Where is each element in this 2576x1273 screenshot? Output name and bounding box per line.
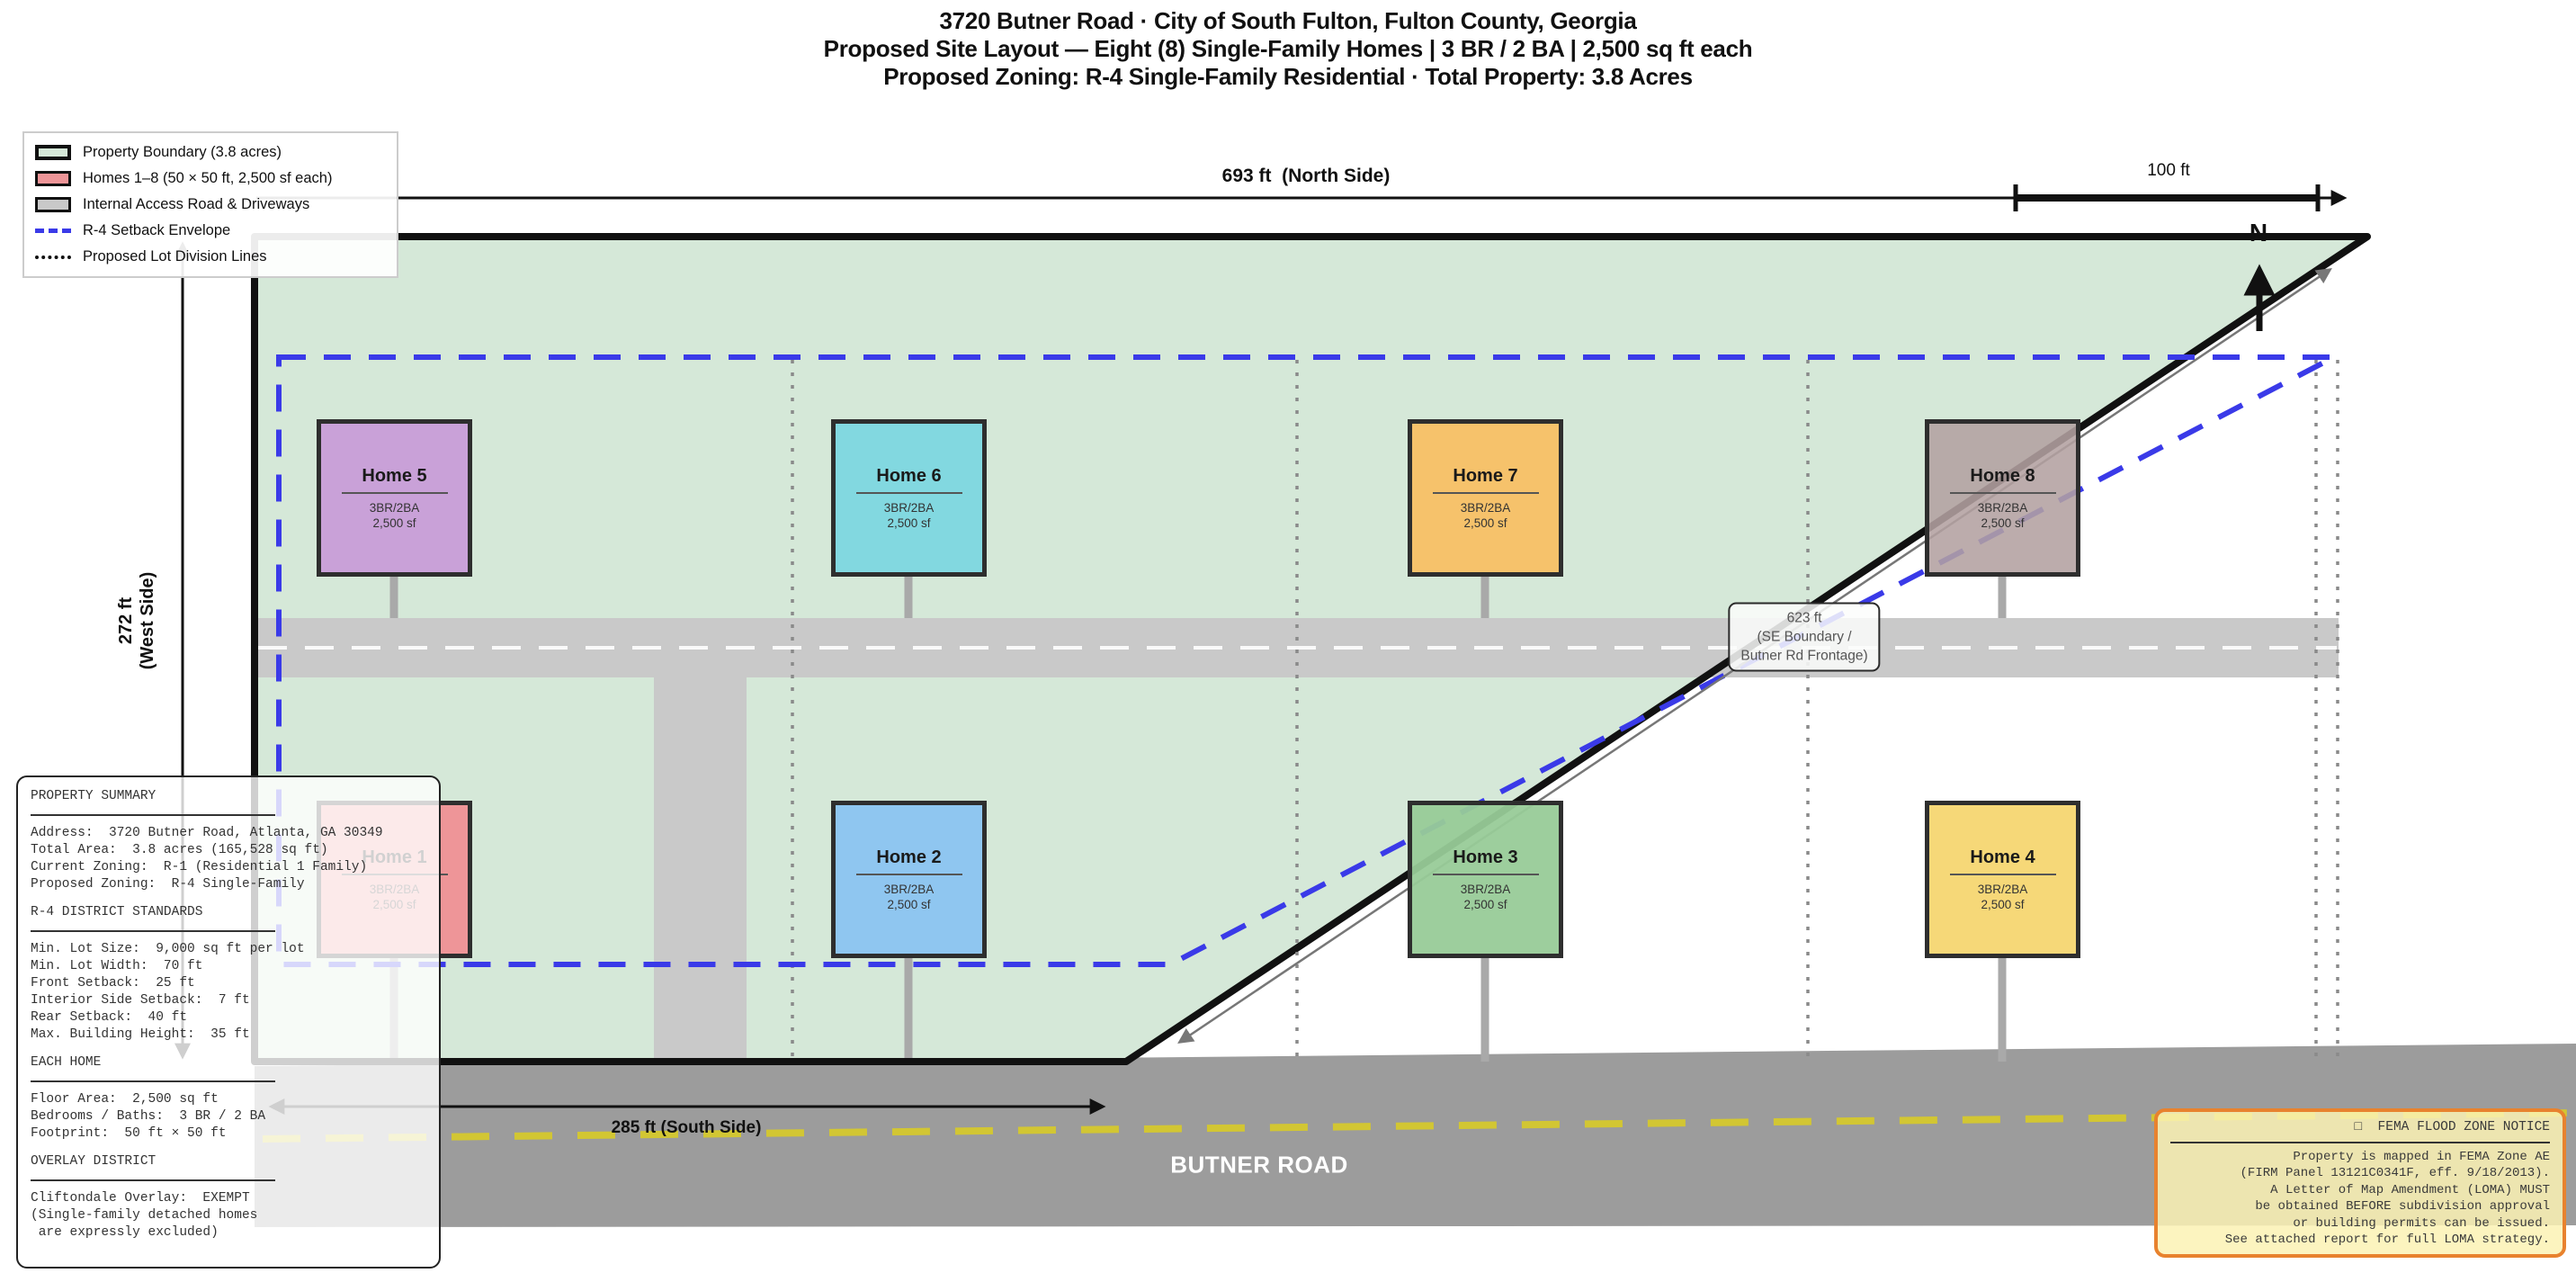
home-divider <box>1950 874 2056 875</box>
west-dimension-label: 272 ft (West Side) <box>115 572 158 670</box>
legend: Property Boundary (3.8 acres) Homes 1–8 … <box>22 131 398 278</box>
se-frontage-label: 623 ft (SE Boundary / Butner Rd Frontage… <box>1728 603 1880 672</box>
home-area: 2,500 sf <box>887 515 930 531</box>
summary-line: Rear Setback: 40 ft <box>31 1009 426 1026</box>
legend-label: Internal Access Road & Driveways <box>83 196 309 213</box>
home-area: 2,500 sf <box>887 897 930 912</box>
home-divider <box>1950 492 2056 494</box>
summary-line: Min. Lot Size: 9,000 sq ft per lot <box>31 941 426 958</box>
home-specs: 3BR/2BA <box>370 500 420 515</box>
se-frontage-length: 623 ft <box>1740 609 1867 628</box>
home-box: Home 8 3BR/2BA 2,500 sf <box>1925 419 2080 577</box>
fema-notice-line: be obtained BEFORE subdivision approval <box>2170 1198 2550 1215</box>
home-name: Home 5 <box>362 466 426 487</box>
home-area: 2,500 sf <box>1463 897 1507 912</box>
home-area: 2,500 sf <box>1981 897 2024 912</box>
legend-swatch-icon <box>35 229 71 233</box>
legend-row: R-4 Setback Envelope <box>35 218 386 244</box>
summary-line: Footprint: 50 ft × 50 ft <box>31 1125 426 1143</box>
legend-row: Property Boundary (3.8 acres) <box>35 139 386 166</box>
fema-notice-line: Property is mapped in FEMA Zone AE <box>2170 1149 2550 1166</box>
page-title: 3720 Butner Road · City of South Fulton,… <box>0 7 2576 91</box>
summary-line: Min. Lot Width: 70 ft <box>31 958 426 975</box>
legend-swatch-icon <box>35 255 71 259</box>
legend-label: Homes 1–8 (50 × 50 ft, 2,500 sf each) <box>83 170 332 187</box>
legend-row: Internal Access Road & Driveways <box>35 192 386 218</box>
home-name: Home 8 <box>1970 466 2035 487</box>
home-specs: 3BR/2BA <box>1461 882 1511 897</box>
legend-swatch-icon <box>35 171 71 186</box>
home-divider <box>1433 492 1539 494</box>
home-name: Home 7 <box>1453 466 1517 487</box>
home-name: Home 2 <box>876 847 941 868</box>
summary-line: (Single-family detached homes <box>31 1207 426 1224</box>
home-specs: 3BR/2BA <box>1978 882 2028 897</box>
fema-notice-line: or building permits can be issued. <box>2170 1215 2550 1233</box>
home-box: Home 7 3BR/2BA 2,500 sf <box>1408 419 1563 577</box>
fema-notice-line: A Letter of Map Amendment (LOMA) MUST <box>2170 1182 2550 1199</box>
summary-line: Front Setback: 25 ft <box>31 975 426 992</box>
summary-line: Bedrooms / Baths: 3 BR / 2 BA <box>31 1108 426 1125</box>
home-box: Home 6 3BR/2BA 2,500 sf <box>831 419 987 577</box>
title-line-3: Proposed Zoning: R-4 Single-Family Resid… <box>0 63 2576 91</box>
summary-line <box>31 1044 426 1054</box>
summary-line <box>31 893 426 904</box>
fema-notice-title: □ FEMA FLOOD ZONE NOTICE <box>2170 1119 2550 1143</box>
fema-notice-body: Property is mapped in FEMA Zone AE (FIRM… <box>2170 1149 2550 1249</box>
legend-row: Homes 1–8 (50 × 50 ft, 2,500 sf each) <box>35 166 386 192</box>
summary-line: Cliftondale Overlay: EXEMPT <box>31 1190 426 1207</box>
home-specs: 3BR/2BA <box>1978 500 2028 515</box>
home-area: 2,500 sf <box>372 515 416 531</box>
home-specs: 3BR/2BA <box>1461 500 1511 515</box>
legend-row: Proposed Lot Division Lines <box>35 244 386 270</box>
fema-notice-line: (FIRM Panel 13121C0341F, eff. 9/18/2013)… <box>2170 1165 2550 1182</box>
home-name: Home 6 <box>876 466 941 487</box>
home-divider <box>856 492 962 494</box>
legend-swatch-icon <box>35 145 71 160</box>
summary-line: OVERLAY DISTRICT <box>31 1153 426 1181</box>
summary-line <box>31 1143 426 1153</box>
summary-line: Floor Area: 2,500 sq ft <box>31 1091 426 1108</box>
legend-label: R-4 Setback Envelope <box>83 222 230 239</box>
summary-line: Total Area: 3.8 acres (165,528 sq ft) <box>31 842 426 859</box>
home-box: Home 2 3BR/2BA 2,500 sf <box>831 801 987 958</box>
summary-line: Proposed Zoning: R-4 Single-Family <box>31 876 426 893</box>
fema-flood-notice: □ FEMA FLOOD ZONE NOTICE Property is map… <box>2154 1108 2566 1258</box>
site-plan-page: Home 1 3BR/2BA 2,500 sf Home 2 3BR/2BA 2… <box>0 0 2576 1273</box>
legend-label: Proposed Lot Division Lines <box>83 248 267 265</box>
scale-bar-label: 100 ft <box>2147 161 2190 181</box>
fema-notice-line: See attached report for full LOMA strate… <box>2170 1232 2550 1249</box>
summary-line: R-4 DISTRICT STANDARDS <box>31 904 426 932</box>
home-area: 2,500 sf <box>1463 515 1507 531</box>
summary-line: Interior Side Setback: 7 ft <box>31 992 426 1009</box>
se-frontage-desc-1: (SE Boundary / <box>1740 628 1867 647</box>
north-dimension-label: 693 ft (North Side) <box>1222 166 1391 187</box>
se-frontage-desc-2: Butner Rd Frontage) <box>1740 647 1867 666</box>
south-dimension-label: 285 ft (South Side) <box>612 1118 762 1138</box>
title-line-1: 3720 Butner Road · City of South Fulton,… <box>0 7 2576 35</box>
home-area: 2,500 sf <box>1981 515 2024 531</box>
home-divider <box>1433 874 1539 875</box>
home-name: Home 4 <box>1970 847 2035 868</box>
north-arrow-letter: N <box>2250 219 2267 247</box>
legend-swatch-icon <box>35 197 71 212</box>
title-line-2: Proposed Site Layout — Eight (8) Single-… <box>0 35 2576 63</box>
home-box: Home 4 3BR/2BA 2,500 sf <box>1925 801 2080 958</box>
summary-line: EACH HOME <box>31 1054 426 1082</box>
legend-label: Property Boundary (3.8 acres) <box>83 144 282 161</box>
home-box: Home 3 3BR/2BA 2,500 sf <box>1408 801 1563 958</box>
home-divider <box>342 492 448 494</box>
summary-line: Current Zoning: R-1 (Residential 1 Famil… <box>31 859 426 876</box>
summary-line: Max. Building Height: 35 ft <box>31 1026 426 1044</box>
home-specs: 3BR/2BA <box>884 882 935 897</box>
property-summary-panel: PROPERTY SUMMARY Address: 3720 Butner Ro… <box>16 775 441 1269</box>
home-box: Home 5 3BR/2BA 2,500 sf <box>317 419 472 577</box>
summary-line: are expressly excluded) <box>31 1224 426 1242</box>
home-divider <box>856 874 962 875</box>
summary-line: Address: 3720 Butner Road, Atlanta, GA 3… <box>31 825 426 842</box>
home-name: Home 3 <box>1453 847 1517 868</box>
butner-road-label: BUTNER ROAD <box>1170 1152 1348 1179</box>
summary-line: PROPERTY SUMMARY <box>31 788 426 816</box>
home-specs: 3BR/2BA <box>884 500 935 515</box>
